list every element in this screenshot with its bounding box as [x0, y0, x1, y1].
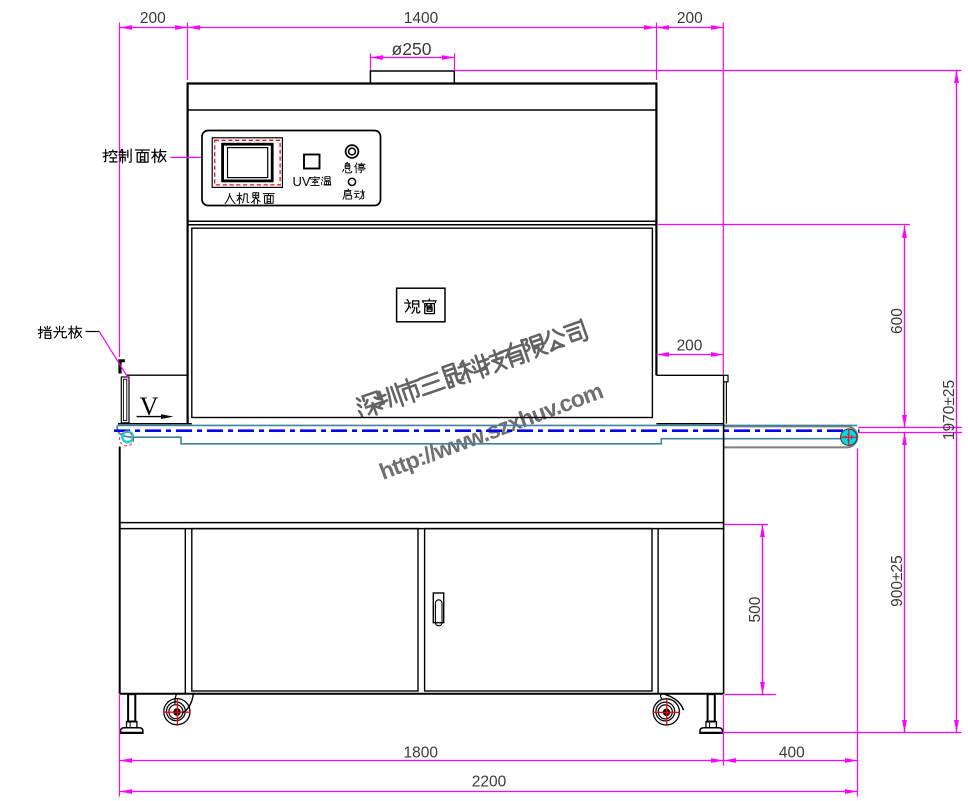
svg-text:1970±25: 1970±25 — [941, 380, 958, 440]
svg-text:400: 400 — [779, 745, 805, 762]
svg-text:UV: UV — [293, 174, 311, 189]
svg-text:200: 200 — [677, 10, 703, 27]
svg-text:ø250: ø250 — [392, 39, 432, 59]
svg-text:900±25: 900±25 — [889, 555, 906, 607]
svg-text:1800: 1800 — [404, 745, 439, 762]
svg-text:200: 200 — [677, 338, 703, 355]
svg-text:2200: 2200 — [472, 774, 507, 791]
svg-text:1400: 1400 — [404, 10, 439, 27]
svg-text:200: 200 — [140, 10, 166, 27]
svg-text:500: 500 — [747, 596, 764, 622]
svg-text:600: 600 — [889, 308, 906, 334]
